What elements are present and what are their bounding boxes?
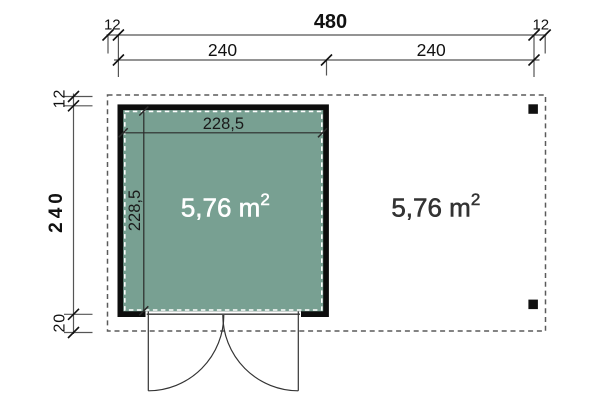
svg-text:240: 240: [208, 40, 237, 60]
svg-text:12: 12: [104, 17, 121, 34]
svg-text:240: 240: [46, 189, 67, 233]
svg-text:12: 12: [532, 17, 549, 34]
svg-text:5,76 m2: 5,76 m2: [181, 190, 270, 223]
svg-text:20: 20: [52, 313, 69, 332]
svg-text:12: 12: [52, 89, 69, 108]
svg-text:228,5: 228,5: [203, 115, 244, 133]
svg-text:5,76 m2: 5,76 m2: [391, 190, 480, 223]
svg-text:228,5: 228,5: [126, 190, 144, 231]
svg-text:480: 480: [314, 11, 347, 33]
svg-text:240: 240: [417, 40, 446, 60]
